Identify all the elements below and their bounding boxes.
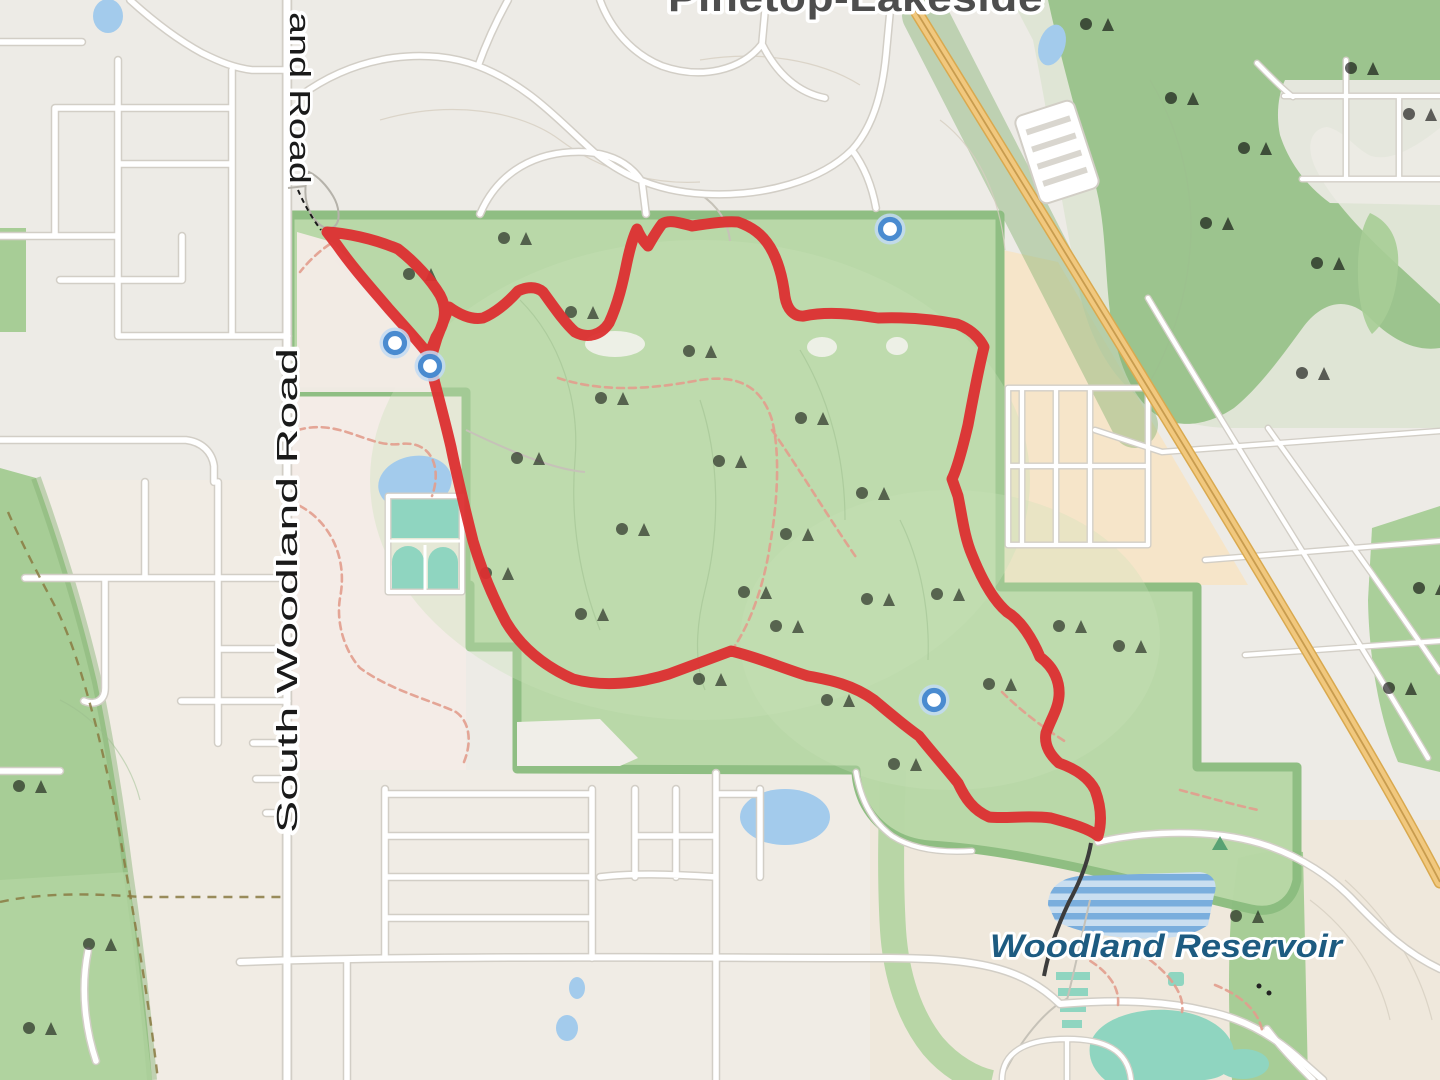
- reservoir-label: Woodland Reservoir: [990, 928, 1344, 964]
- pond: [1217, 1049, 1269, 1079]
- waypoint-marker[interactable]: [380, 328, 411, 359]
- map-canvas[interactable]: Pinetop-Lakeside and Road South Woodland…: [0, 0, 1440, 1080]
- waypoint-ring-icon: [386, 334, 405, 353]
- pond: [93, 0, 123, 33]
- waypoint-ring-icon: [421, 357, 440, 376]
- road-label: South Woodland Road: [272, 348, 304, 833]
- pond: [556, 1015, 578, 1041]
- city-label: Pinetop-Lakeside: [668, 0, 1043, 20]
- road-label-partial: and Road: [283, 12, 315, 184]
- waypoint-ring-icon: [925, 691, 944, 710]
- pond: [569, 977, 585, 999]
- waypoint-marker[interactable]: [875, 214, 906, 245]
- waypoint-marker[interactable]: [919, 685, 950, 716]
- trail-map[interactable]: Pinetop-Lakeside and Road South Woodland…: [0, 0, 1440, 1080]
- waypoint-ring-icon: [881, 220, 900, 239]
- waypoint-marker[interactable]: [415, 351, 446, 382]
